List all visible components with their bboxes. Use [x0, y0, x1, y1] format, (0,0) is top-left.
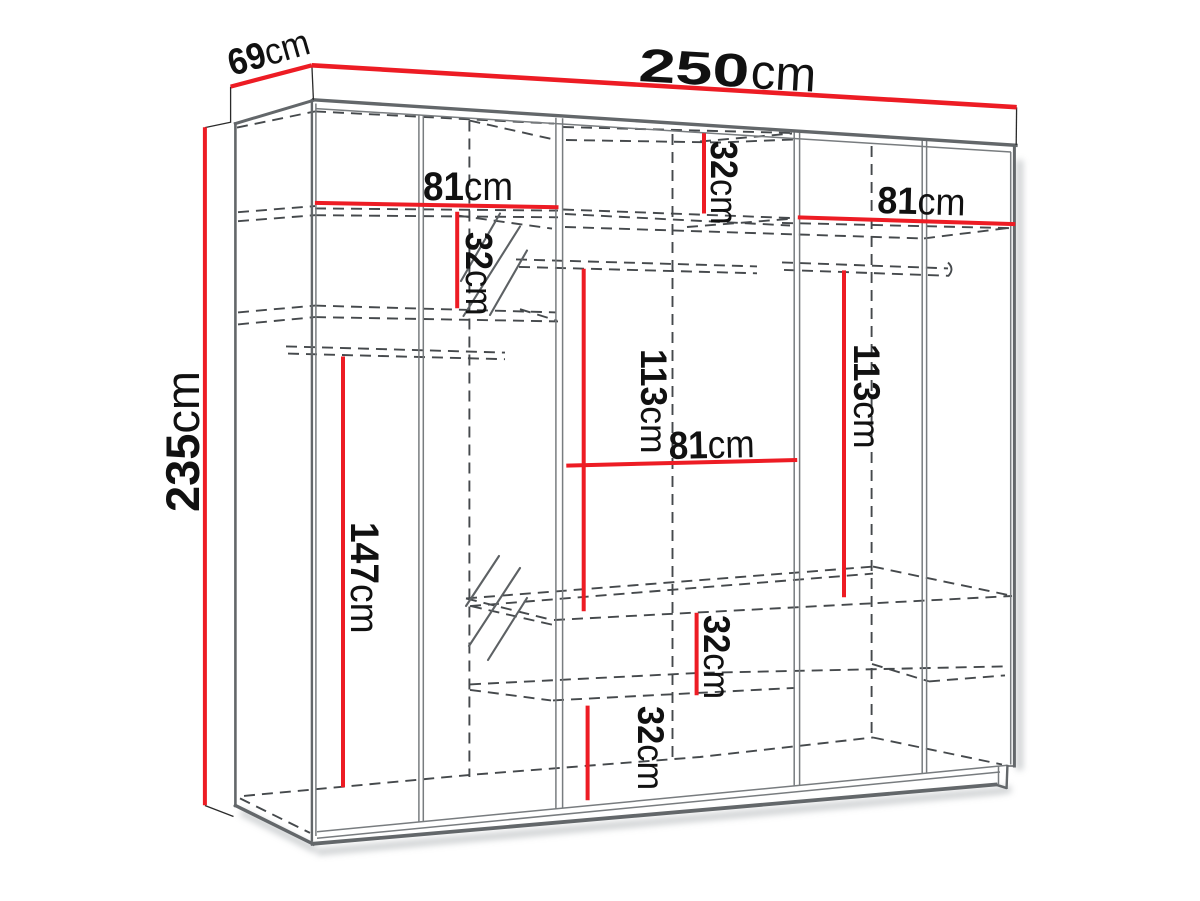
svg-text:32cm: 32cm — [696, 615, 737, 699]
svg-text:81cm: 81cm — [877, 178, 966, 224]
svg-text:113cm: 113cm — [846, 344, 888, 449]
svg-text:235cm: 235cm — [156, 371, 209, 512]
svg-text:147cm: 147cm — [342, 522, 387, 634]
svg-text:32cm: 32cm — [458, 232, 501, 316]
svg-text:81cm: 81cm — [423, 165, 513, 210]
svg-text:32cm: 32cm — [630, 706, 671, 790]
svg-text:250: 250 — [637, 39, 750, 98]
svg-text:32cm: 32cm — [703, 141, 746, 225]
svg-text:cm: cm — [749, 45, 817, 103]
svg-text:81cm: 81cm — [668, 421, 755, 467]
